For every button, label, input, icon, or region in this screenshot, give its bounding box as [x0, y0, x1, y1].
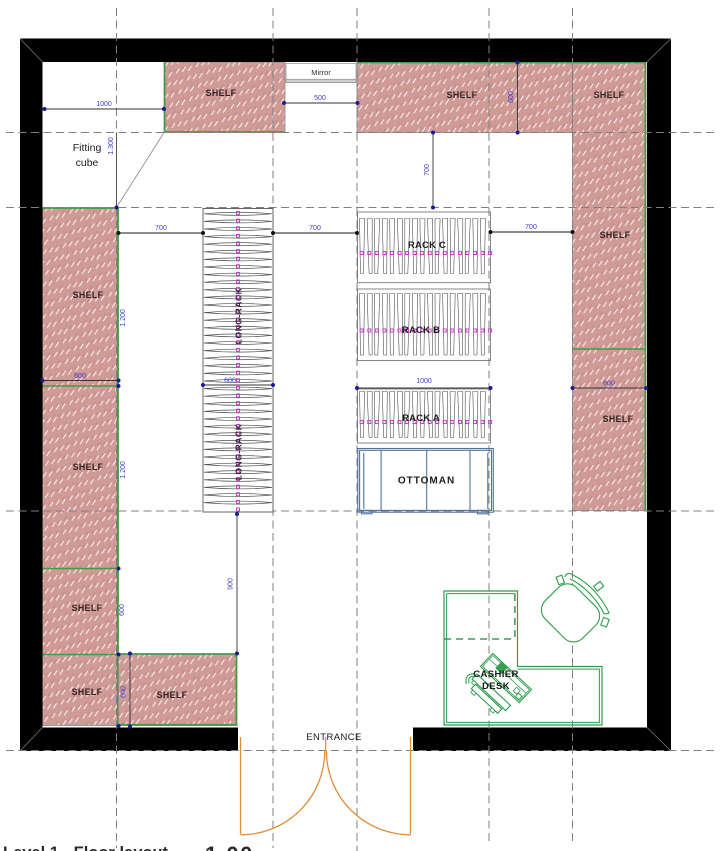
svg-text:Mirror: Mirror [311, 68, 331, 77]
svg-text:1.300: 1.300 [108, 137, 115, 155]
svg-text:1.00: 1.00 [205, 842, 254, 851]
svg-text:Level 1 - Floor layout: Level 1 - Floor layout [3, 844, 169, 851]
svg-text:600: 600 [508, 91, 515, 103]
svg-text:600: 600 [74, 373, 86, 380]
svg-text:SHELF: SHELF [206, 88, 237, 98]
svg-text:SHELF: SHELF [72, 603, 103, 613]
svg-text:cube: cube [76, 157, 99, 169]
svg-text:700: 700 [525, 224, 537, 231]
svg-text:600: 600 [119, 604, 126, 616]
svg-text:1000: 1000 [96, 101, 112, 108]
svg-text:CASHIER: CASHIER [473, 669, 519, 680]
svg-text:600: 600 [603, 381, 615, 388]
svg-text:700: 700 [424, 164, 431, 176]
svg-text:SHELF: SHELF [594, 90, 625, 100]
svg-text:RACK B: RACK B [402, 325, 440, 336]
svg-text:LONG-RACK: LONG-RACK [234, 287, 244, 344]
svg-text:500: 500 [314, 95, 326, 102]
svg-text:600: 600 [224, 378, 236, 385]
svg-text:900: 900 [228, 578, 235, 590]
svg-text:SHELF: SHELF [72, 687, 103, 697]
svg-text:OTTOMAN: OTTOMAN [398, 476, 455, 487]
svg-text:SHELF: SHELF [603, 414, 634, 424]
svg-text:SHELF: SHELF [157, 690, 188, 700]
svg-text:700: 700 [309, 225, 321, 232]
svg-text:DESK: DESK [482, 681, 510, 692]
svg-text:LONG-RACK: LONG-RACK [234, 423, 244, 480]
svg-text:1.200: 1.200 [120, 461, 127, 479]
svg-text:SHELF: SHELF [73, 290, 104, 300]
svg-text:1.200: 1.200 [120, 309, 127, 327]
svg-text:700: 700 [155, 225, 167, 232]
svg-text:RACK C: RACK C [408, 240, 446, 251]
svg-text:1000: 1000 [416, 378, 432, 385]
svg-text:SHELF: SHELF [600, 230, 631, 240]
svg-text:600: 600 [121, 686, 128, 698]
svg-text:ENTRANCE: ENTRANCE [306, 732, 361, 743]
svg-text:RACK A: RACK A [402, 413, 440, 424]
svg-text:SHELF: SHELF [447, 90, 478, 100]
svg-text:Fitting: Fitting [73, 142, 102, 154]
svg-text:SHELF: SHELF [73, 462, 104, 472]
